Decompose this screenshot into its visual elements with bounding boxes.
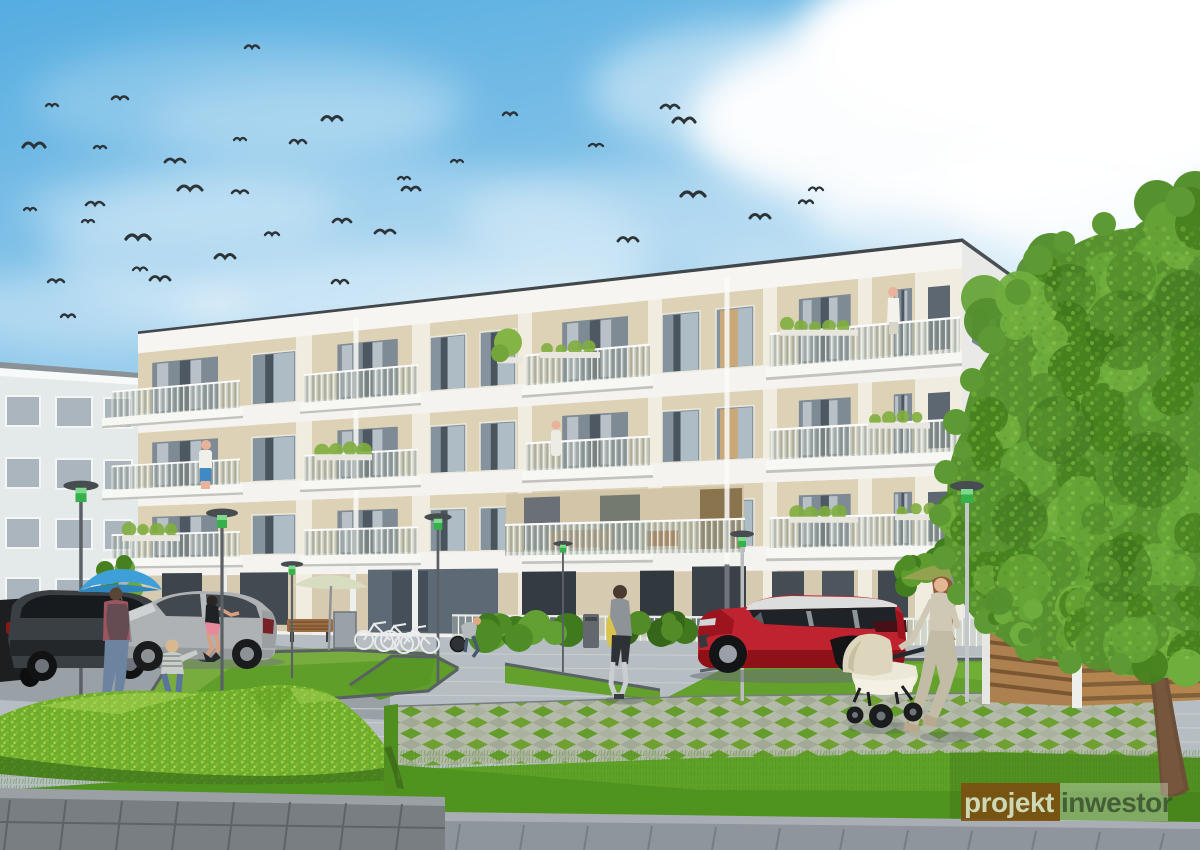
svg-text:inwestor: inwestor: [1061, 787, 1173, 818]
svg-text:projekt: projekt: [964, 787, 1054, 818]
